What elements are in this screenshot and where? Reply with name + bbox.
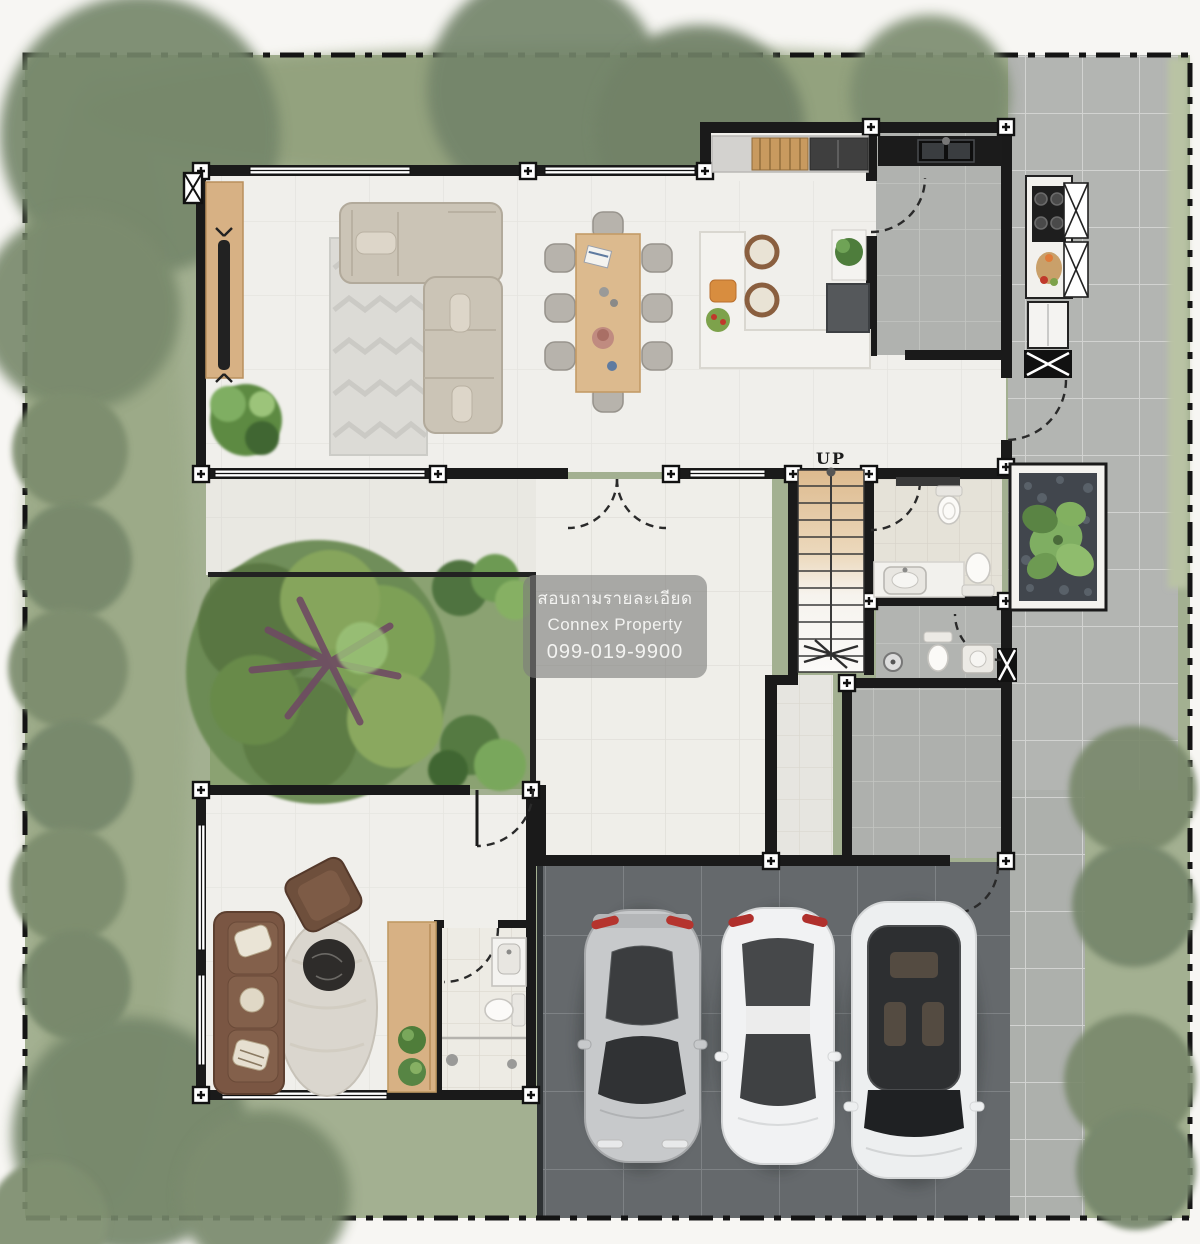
windshield	[740, 1034, 816, 1106]
windshield	[598, 1036, 686, 1104]
shower-valve	[446, 1054, 458, 1066]
table-plate-1	[599, 287, 609, 297]
interior-dash	[890, 952, 938, 978]
stair-start-dot	[827, 468, 836, 477]
wall-kitchen-top	[700, 122, 1012, 133]
window-top-1	[250, 167, 410, 174]
floor-plan-canvas: UP สอบถามรายละเอียด Connex Property 099-…	[0, 0, 1200, 1244]
planter-bed	[1010, 464, 1106, 610]
vanity-sink-1	[874, 562, 964, 597]
column-x-right	[997, 648, 1017, 682]
sofa-pillow-3	[452, 386, 472, 422]
mirror	[844, 1102, 858, 1111]
rear-glass	[606, 946, 678, 1025]
island-salad	[706, 308, 730, 332]
island-bread	[710, 280, 736, 302]
wall-lowerroom-right	[526, 785, 536, 1100]
watermark-brand: Connex Property	[529, 612, 701, 638]
headlight	[662, 1140, 688, 1148]
window-lower-left-2	[198, 975, 205, 1065]
sedan-car	[715, 908, 841, 1172]
stairs-up-label: UP	[816, 449, 846, 468]
courtyard-edge-top	[208, 572, 536, 577]
wall-bathroom-top-b	[498, 920, 534, 928]
courtyard-tree	[186, 540, 450, 804]
wall-stub	[765, 675, 798, 685]
tv-console	[206, 182, 243, 382]
wall-wetkitchen-bottom	[905, 350, 1012, 360]
living-plant	[210, 384, 282, 456]
headlight	[597, 1140, 623, 1148]
table-plate-2	[610, 299, 618, 307]
interior-seat	[884, 1002, 906, 1046]
suv-car	[844, 902, 984, 1187]
courtyard	[186, 540, 535, 804]
wall-right-upper	[1001, 122, 1012, 378]
window-lower-left-1	[198, 825, 205, 950]
sofa-pillow-round	[240, 988, 264, 1012]
wall-stairs-right	[864, 470, 874, 675]
towel-bar	[896, 477, 960, 486]
watermark-phone: 099-019-9900	[529, 637, 701, 667]
shaft-x-kitchen	[1024, 350, 1072, 378]
glass-roof	[868, 926, 960, 1090]
watermark: สอบถามรายละเอียด Connex Property 099-019…	[523, 575, 707, 678]
wall-utility-top	[842, 678, 1012, 688]
sofa-pillow-1	[356, 232, 396, 254]
table-deco	[607, 361, 617, 371]
sports-car	[578, 908, 707, 1172]
tv-screen	[218, 240, 230, 370]
roof	[746, 1006, 810, 1034]
mirror	[715, 1052, 728, 1061]
window-main-2	[690, 470, 765, 477]
vanity-sink-3	[492, 938, 526, 986]
wall-utility-left	[842, 678, 852, 865]
mirror	[970, 1102, 984, 1111]
cooktop-counter	[827, 284, 869, 332]
carport-cars	[578, 902, 984, 1187]
staircase	[798, 468, 864, 673]
column-x-topleft	[184, 173, 202, 203]
wall-living-left	[196, 165, 206, 479]
sink-2	[962, 645, 994, 673]
mirror	[828, 1052, 841, 1061]
round-marble-table	[303, 939, 355, 991]
floor-drain	[507, 1059, 517, 1069]
wall-lowerroom-top	[196, 785, 470, 795]
mirror	[694, 1040, 707, 1049]
refrigerator	[810, 138, 868, 170]
wall-right-lower	[1001, 602, 1012, 865]
watermark-line-thai: สอบถามรายละเอียด	[529, 586, 701, 612]
wall-stairs-left	[788, 470, 798, 675]
window-main-1	[215, 470, 425, 477]
bar-stool-1	[747, 237, 777, 267]
brown-sofa	[214, 912, 284, 1094]
sofa-pillow-2	[450, 294, 470, 332]
rear-glass	[742, 938, 814, 1006]
window-top-2	[545, 167, 695, 174]
carport-edge	[537, 862, 543, 1218]
windshield	[864, 1090, 964, 1137]
sink-faucet	[942, 137, 950, 145]
mirror	[578, 1040, 591, 1049]
cabinet-plant-1	[398, 1026, 426, 1054]
interior-seat	[922, 1002, 944, 1046]
hedge-strip-right	[1168, 58, 1188, 588]
toilet-1	[936, 486, 962, 524]
wall-corridor-left	[765, 675, 777, 865]
wall-south-a	[536, 855, 950, 866]
bar-stool-2	[747, 285, 777, 315]
